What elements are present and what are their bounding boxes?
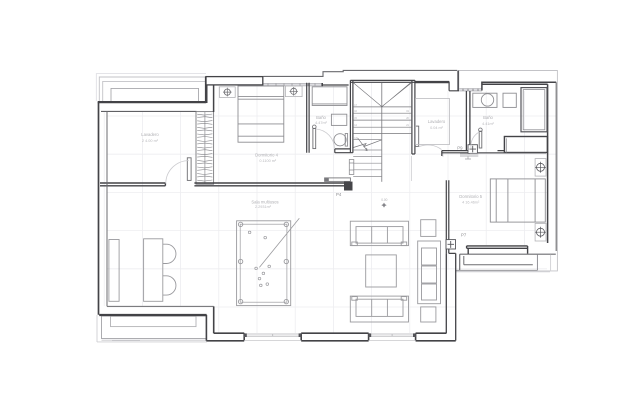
svg-text:2.2931m²: 2.2931m²	[255, 205, 272, 209]
svg-text:Lavadero: Lavadero	[141, 132, 159, 137]
svg-text:P7: P7	[461, 233, 467, 238]
svg-text:4.47m²: 4.47m²	[315, 121, 328, 125]
svg-text:4.41m²: 4.41m²	[482, 122, 495, 126]
svg-text:4 16.46m²: 4 16.46m²	[462, 201, 480, 205]
svg-text:0.00: 0.00	[381, 198, 387, 202]
svg-text:2 4.00 m²: 2 4.00 m²	[142, 139, 159, 143]
svg-text:Dormitorio 5: Dormitorio 5	[459, 194, 482, 199]
svg-text:Sala multiusos: Sala multiusos	[251, 200, 278, 205]
svg-text:Baño: Baño	[316, 115, 326, 120]
svg-text:P4: P4	[336, 192, 342, 197]
svg-text:Dormitorio 4: Dormitorio 4	[255, 152, 278, 157]
svg-text:0.1100 m²: 0.1100 m²	[259, 159, 277, 163]
svg-text:Lavadero: Lavadero	[428, 119, 446, 124]
svg-text:Baño: Baño	[483, 115, 493, 120]
svg-text:0.04 m²: 0.04 m²	[430, 126, 444, 130]
svg-text:P9: P9	[457, 145, 463, 150]
